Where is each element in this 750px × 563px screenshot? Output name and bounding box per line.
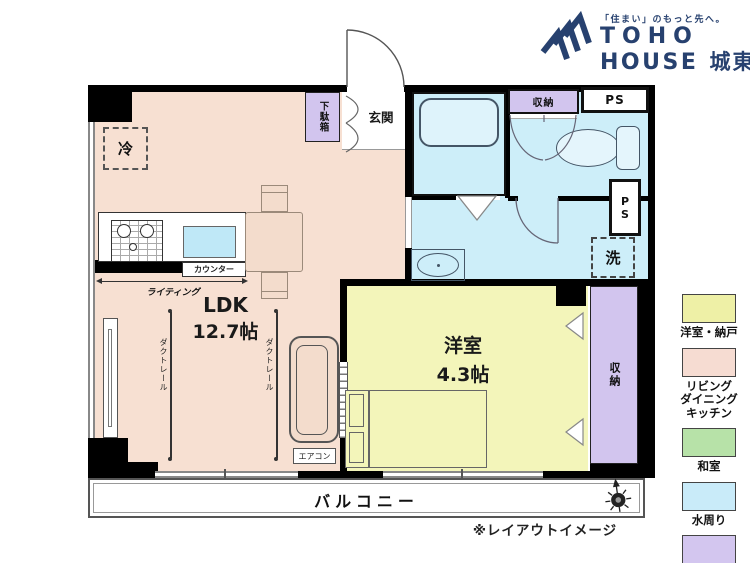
wall-closet-right xyxy=(638,286,648,464)
ldk-label-block: LDK 12.7帖 xyxy=(158,291,293,346)
toilet-tank xyxy=(616,126,640,170)
ps-top-label: PS xyxy=(605,93,624,107)
duct-rail-dot xyxy=(168,457,172,461)
duct-rail-label-left: ダクトレール xyxy=(158,338,169,392)
bathtub xyxy=(419,98,499,147)
legend-label-japanese: 和室 xyxy=(698,460,721,474)
lighting-dim-line xyxy=(98,281,246,282)
brand-branch: 城東 xyxy=(709,50,750,74)
legend-label-western: 洋室・納戸 xyxy=(680,326,738,340)
aircon-tag-ldk: エアコン xyxy=(293,448,336,464)
wall-ldk-water-upper xyxy=(405,85,412,197)
western-size: 4.3帖 xyxy=(397,361,529,390)
washer-box: 洗 xyxy=(591,237,635,278)
stove-burner-small xyxy=(129,243,137,251)
fridge-box: 冷 xyxy=(103,127,148,170)
column-top-left xyxy=(92,88,132,122)
ps-top-box: PS xyxy=(581,87,649,113)
sofa-seat xyxy=(296,345,328,435)
legend-swatch-western xyxy=(682,294,736,323)
ps-side-label: PS xyxy=(619,195,632,221)
toilet-door-arcs-icon xyxy=(503,110,585,165)
wash-basin-drain xyxy=(437,264,440,267)
counter-label: カウンター xyxy=(194,264,234,275)
brand-name-line1: TOHO xyxy=(600,25,699,48)
legend-label-water: 水周り xyxy=(692,514,727,528)
window-bottom-ldk xyxy=(155,471,298,478)
western-label: 洋室 xyxy=(397,332,529,361)
tv-board-inner xyxy=(108,329,112,427)
duct-rail-label-right: ダクトレール xyxy=(264,338,275,392)
stove-burner-right xyxy=(140,224,154,238)
closet-slide-marker-bottom-icon xyxy=(562,416,586,448)
column-bottom-left-2 xyxy=(128,462,158,471)
bed-pillow-bottom xyxy=(349,432,364,463)
front-door-icon xyxy=(340,24,410,90)
balcony: バルコニー xyxy=(88,478,645,518)
toho-house-logo-icon xyxy=(540,14,598,72)
lighting-dim-arrow-right xyxy=(242,278,248,284)
column-western-top xyxy=(556,286,586,306)
ldk-label: LDK xyxy=(158,291,293,319)
bath-folding-door-icon xyxy=(450,192,504,224)
counter-tag: カウンター xyxy=(182,262,246,277)
brand-logo: 「住まい」のもっと先へ。 TOHO HOUSE 城東 xyxy=(538,8,750,76)
fridge-label: 冷 xyxy=(118,138,133,159)
legend-swatch-water xyxy=(682,482,736,511)
ps-side-box: PS xyxy=(609,179,641,236)
entrance-double-door-icon xyxy=(336,92,378,156)
washroom-door-icon xyxy=(508,194,566,249)
aircon-label: エアコン xyxy=(299,451,331,462)
ldk-size: 12.7帖 xyxy=(158,319,293,346)
legend: 洋室・納戸 リビング ダイニング キッチン 和室 水周り 収納 xyxy=(666,294,750,563)
bed xyxy=(345,390,487,468)
sofa xyxy=(289,336,339,443)
window-bottom-western xyxy=(383,471,543,478)
brand-name-line2: HOUSE xyxy=(600,50,698,75)
wash-doorway xyxy=(405,197,412,248)
kitchen-sink xyxy=(183,226,236,258)
bed-head-line xyxy=(368,391,370,467)
legend-label-ldk: リビング ダイニング キッチン xyxy=(680,380,738,421)
washer-label: 洗 xyxy=(605,247,620,268)
tv-board xyxy=(103,318,118,438)
wall-closet-bottom xyxy=(590,464,648,472)
western-label-block: 洋室 4.3帖 xyxy=(397,332,529,389)
toilet-closet-label: 収納 xyxy=(533,94,555,109)
column-bottom-left xyxy=(95,438,128,471)
closet-slide-marker-top-icon xyxy=(562,310,586,342)
wall-horizontal-mid xyxy=(340,279,655,286)
dining-table xyxy=(245,212,303,272)
duct-rail-dot xyxy=(274,457,278,461)
chair-top-back xyxy=(262,186,287,193)
bed-pillow-top xyxy=(349,394,364,427)
stove xyxy=(111,220,163,262)
balcony-label: バルコニー xyxy=(90,488,643,512)
legend-swatch-storage xyxy=(682,535,736,563)
lighting-dim-arrow-left xyxy=(96,278,102,284)
bedroom-closet: 収納 xyxy=(590,286,638,464)
chair-top xyxy=(261,185,288,212)
stove-burner-left xyxy=(117,224,131,238)
bedroom-closet-label: 収納 xyxy=(606,362,622,388)
floorplan-page: 「住まい」のもっと先へ。 TOHO HOUSE 城東 玄関 下駄箱 xyxy=(0,0,750,563)
legend-swatch-ldk xyxy=(682,348,736,377)
legend-swatch-japanese xyxy=(682,428,736,457)
layout-note: ※レイアウトイメージ xyxy=(450,519,640,539)
compass-icon xyxy=(598,478,639,519)
wash-basin xyxy=(411,249,465,281)
window-left xyxy=(88,122,95,438)
